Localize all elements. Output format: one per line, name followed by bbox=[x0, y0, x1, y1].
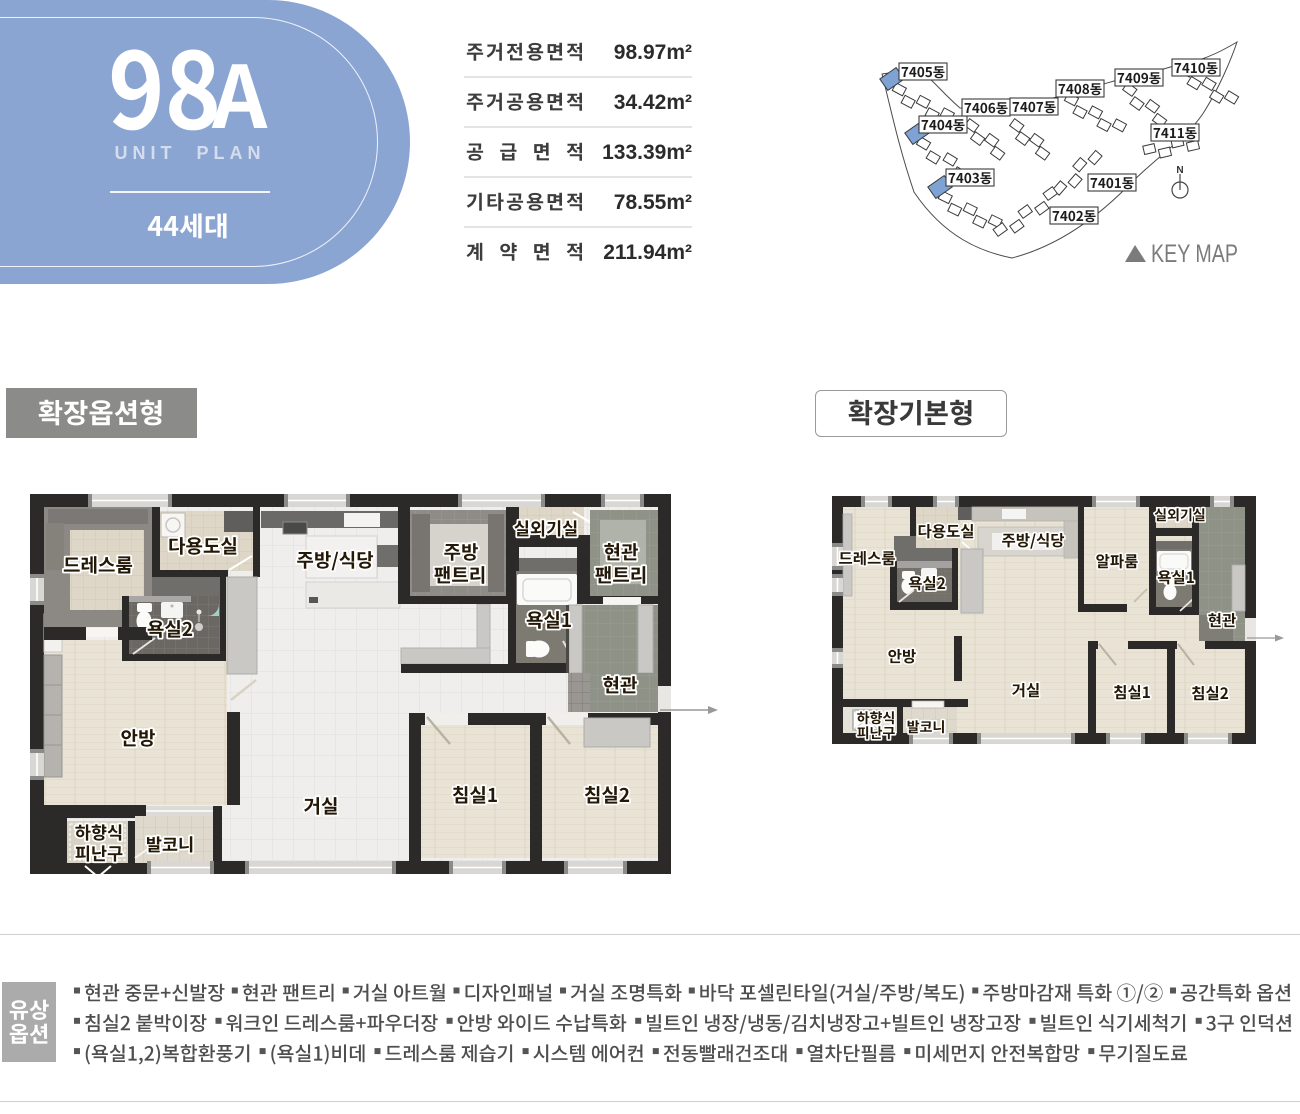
svg-text:N: N bbox=[1176, 165, 1183, 176]
svg-text:KEY MAP: KEY MAP bbox=[1151, 240, 1238, 268]
